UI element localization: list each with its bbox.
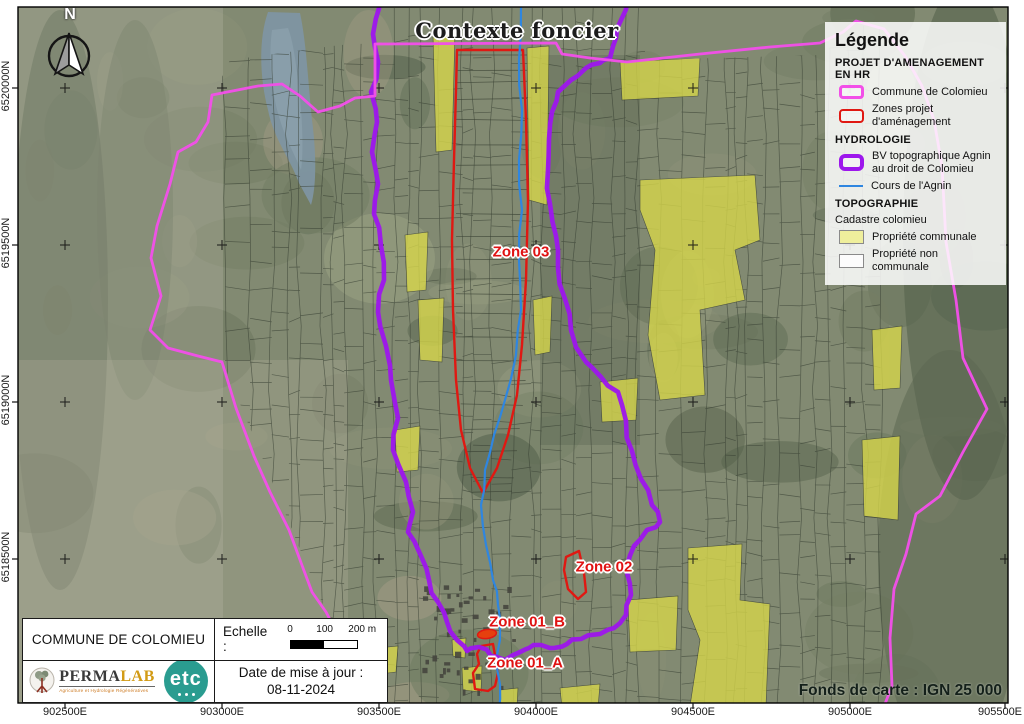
scale-label: Echelle : [223,624,272,654]
permalab-wordmark: PERMALAB Agriculture et Hydrologie Régén… [59,669,155,693]
y-axis-label: 6518500N [0,525,12,589]
scale-cell: Echelle : 0 100 200 m [215,619,387,661]
legend-item-label: Commune de Colomieu [872,86,988,99]
zone-label: Zone 01_B [489,614,565,631]
legend-section-projet: PROJET D'AMENAGEMENT EN HR [835,57,996,81]
legend-item-cours: Cours de l'Agnin [839,180,996,193]
x-axis-label: 905000E [828,706,872,718]
date-cell: Date de mise à jour : 08-11-2024 [215,661,387,703]
bv-boundary-swatch [839,154,864,171]
map-title: Contexte foncier [415,18,618,43]
legend-item-label: Propriété communale [872,231,977,244]
date-value: 08-11-2024 [267,681,335,699]
legend-item-communale: Propriété communale [839,230,996,244]
commune-boundary-swatch [839,85,864,99]
legend-item-zones: Zones projet d'aménagement [839,103,996,128]
legend-title: Légende [835,30,996,51]
y-axis-label: 6520000N [0,54,12,118]
scale-bar-fill [291,641,324,648]
legend-item-bv: BV topographique Agnin au droit de Colom… [839,150,996,175]
north-label: N [64,6,76,24]
north-arrow-icon: N [42,8,98,92]
y-axis-label: 6519000N [0,368,12,432]
zones-projet-swatch [839,109,864,123]
etc-logo: etc [164,661,208,703]
x-axis-label: 902500E [43,706,87,718]
legend-item-commune: Commune de Colomieu [839,85,996,99]
y-axis-label: 6519500N [0,211,12,275]
zone-label: Zone 01_A [487,655,563,672]
scale-bar-track [290,640,358,649]
legend-item-non-communale: Propriété non communale [839,248,996,273]
propriete-non-communale-swatch [839,254,864,268]
x-axis-label: 903500E [357,706,401,718]
permalab-tree-icon [29,666,55,696]
legend-item-label: Cours de l'Agnin [871,180,951,193]
logos-cell: PERMALAB Agriculture et Hydrologie Régén… [23,661,215,703]
etc-logo-dots [178,693,181,696]
legend-item-label: Zones projet d'aménagement [872,103,996,128]
stream-swatch [839,185,863,187]
permalab-logo: PERMALAB Agriculture et Hydrologie Régén… [29,666,155,696]
permalab-subtitle: Agriculture et Hydrologie Régénératives [59,689,155,694]
commune-name-cell: COMMUNE DE COLOMIEU [23,619,215,661]
legend-section-hydrologie: HYDROLOGIE [835,134,996,146]
legend-subheading-cadastre: Cadastre colomieu [835,214,996,226]
x-axis-label: 903000E [200,706,244,718]
zone-label: Zone 03 [493,244,550,261]
basemap-credit: Fonds de carte : IGN 25 000 [799,682,1002,700]
map-page: Contexte foncier N Légende PROJET D'AMEN… [0,0,1024,724]
scale-bar: 0 100 200 m [282,624,387,654]
x-axis-label: 904500E [671,706,715,718]
x-axis-label: 904000E [514,706,558,718]
legend-section-topographie: TOPOGRAPHIE [835,198,996,210]
legend-panel: Légende PROJET D'AMENAGEMENT EN HR Commu… [825,22,1006,285]
date-label: Date de mise à jour : [239,664,364,682]
x-axis-label: 905500E [978,706,1022,718]
commune-name: COMMUNE DE COLOMIEU [32,632,205,647]
legend-item-label: Propriété non communale [872,248,996,273]
legend-item-label: BV topographique Agnin au droit de Colom… [872,150,991,175]
zone-label: Zone 02 [576,559,633,576]
info-panel: COMMUNE DE COLOMIEU Echelle : 0 100 200 … [22,618,388,703]
propriete-communale-swatch [839,230,864,244]
